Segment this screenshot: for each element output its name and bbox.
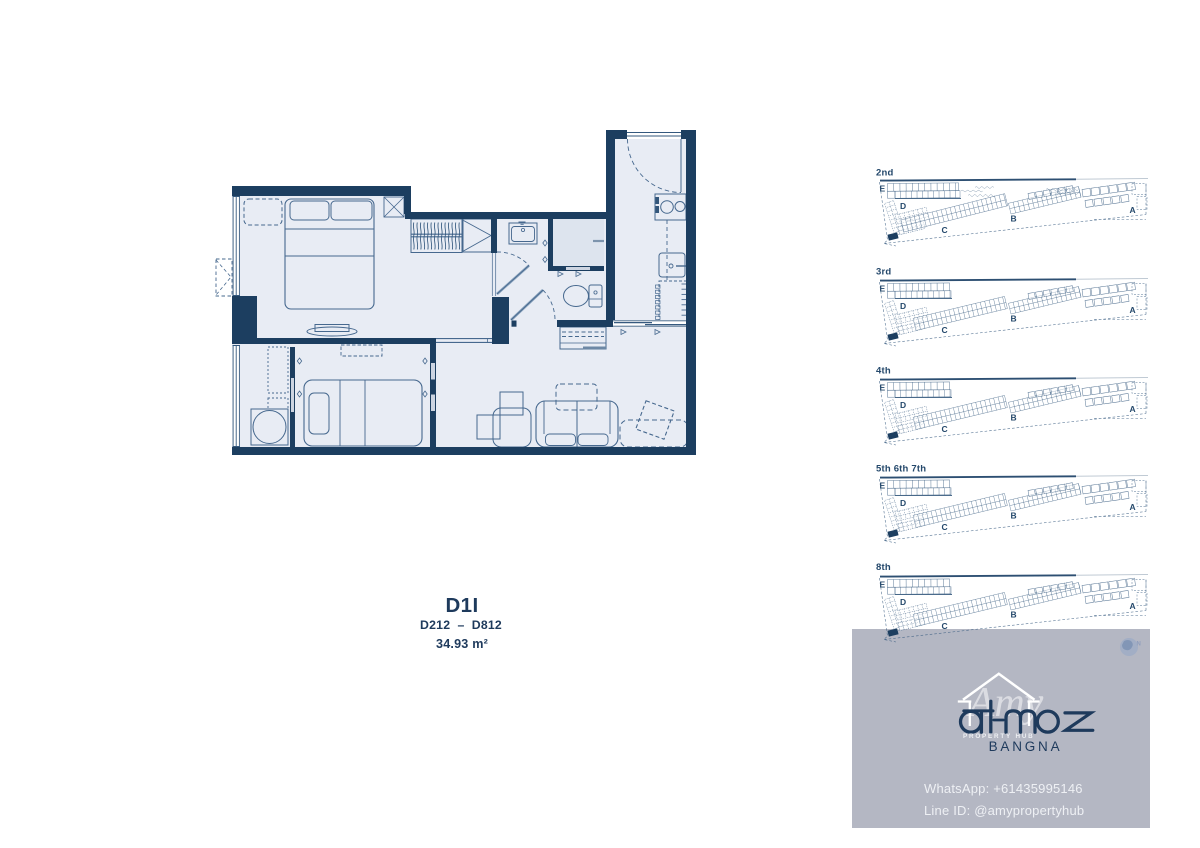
svg-text:34.93 m²: 34.93 m² xyxy=(436,637,488,651)
svg-text:E: E xyxy=(880,184,886,194)
svg-text:BANGNA: BANGNA xyxy=(989,739,1063,754)
svg-text:D: D xyxy=(900,201,906,211)
svg-text:A: A xyxy=(1130,205,1136,215)
svg-text:3rd: 3rd xyxy=(876,267,891,278)
svg-text:2nd: 2nd xyxy=(876,168,894,179)
svg-text:B: B xyxy=(1011,214,1017,224)
svg-text:D212 – D812: D212 – D812 xyxy=(420,618,502,632)
svg-text:WhatsApp: +61435995146: WhatsApp: +61435995146 xyxy=(924,781,1083,796)
svg-text:D1I: D1I xyxy=(445,594,478,617)
svg-text:Line ID: @amypropertyhub: Line ID: @amypropertyhub xyxy=(924,803,1084,818)
svg-text:N: N xyxy=(1137,642,1141,648)
svg-text:5th 6th 7th: 5th 6th 7th xyxy=(876,464,926,475)
svg-text:4th: 4th xyxy=(876,366,891,377)
svg-text:8th: 8th xyxy=(876,562,891,573)
svg-text:C: C xyxy=(942,225,948,235)
